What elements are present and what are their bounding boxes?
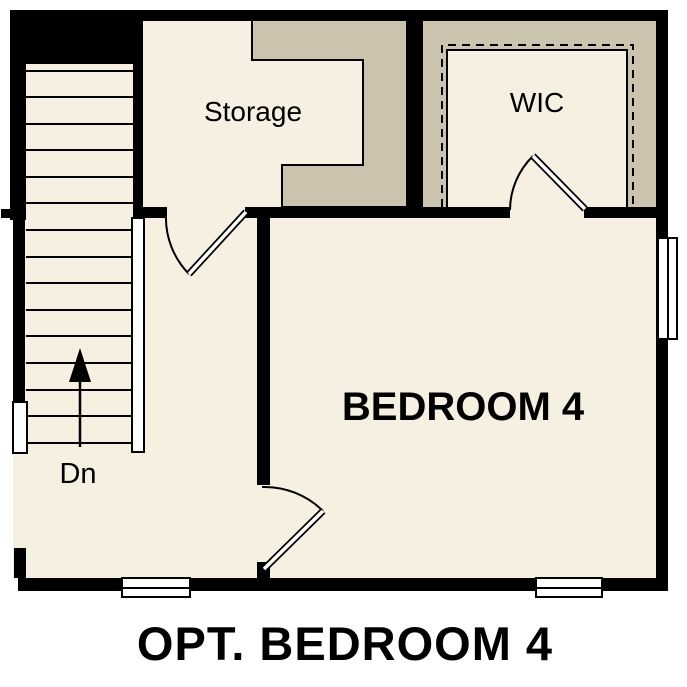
window-left-wall xyxy=(13,402,27,453)
wall-segment-top xyxy=(143,10,668,21)
stairs-down-label: Dn xyxy=(59,458,96,490)
wall-segment-top-left-block xyxy=(10,10,143,62)
wall-segment-main-horizontal xyxy=(245,207,510,218)
wall-segment-stair-storage xyxy=(133,62,143,218)
wall-segment-wic-right xyxy=(584,207,668,218)
wall-segment-bedroom-vertical xyxy=(257,207,270,485)
wic-room-floor xyxy=(447,50,627,218)
floor-plan-page: Storage WIC BEDROOM 4 Dn OPT. BEDROOM 4 xyxy=(0,0,687,687)
wall-segment-left-middle xyxy=(13,220,25,405)
plan-title: OPT. BEDROOM 4 xyxy=(137,617,553,670)
wall-segment-storage-door-left xyxy=(137,207,167,218)
floor-plan-drawing: Storage WIC BEDROOM 4 Dn OPT. BEDROOM 4 xyxy=(0,0,687,687)
stair-rail xyxy=(132,218,144,452)
wall-segment-left-nub xyxy=(1,209,12,218)
wall-segment-storage-wic xyxy=(406,15,423,218)
wall-segment-left-upper xyxy=(10,62,26,220)
storage-room-label: Storage xyxy=(204,96,302,127)
bedroom4-room-label: BEDROOM 4 xyxy=(342,385,585,429)
wall-segment-left-stub xyxy=(14,548,26,578)
wic-room-label: WIC xyxy=(510,87,564,118)
